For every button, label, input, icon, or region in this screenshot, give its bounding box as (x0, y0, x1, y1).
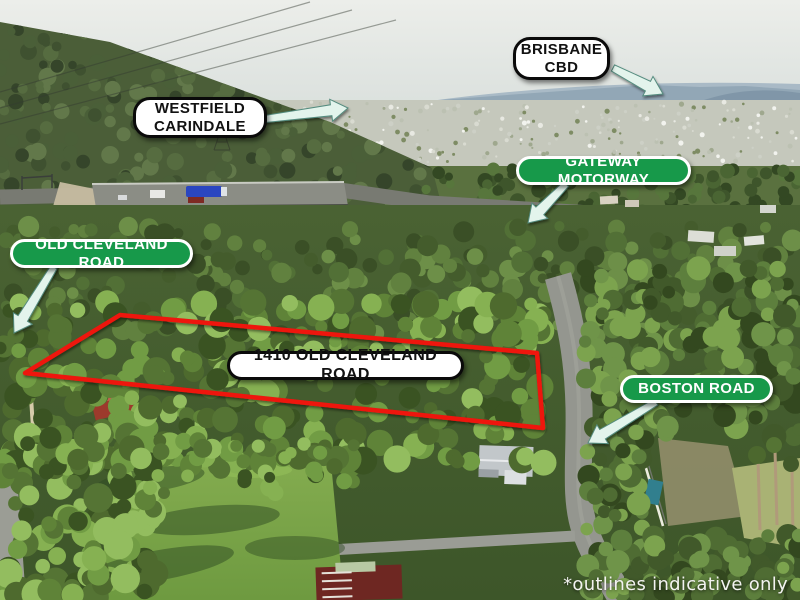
label-boston-road-text: BOSTON ROAD (638, 380, 755, 398)
label-old-cleveland-road-text: OLD CLEVELAND ROAD (13, 236, 190, 271)
aerial-photo-scene (0, 0, 800, 600)
label-old-cleveland-road: OLD CLEVELAND ROAD (10, 239, 193, 268)
label-westfield-carindale: WESTFIELD CARINDALE (133, 97, 267, 138)
label-brisbane-cbd: BRISBANE CBD (513, 37, 610, 80)
label-boston-road: BOSTON ROAD (620, 375, 773, 403)
label-property-address: 1410 OLD CLEVELAND ROAD (227, 351, 464, 380)
disclaimer-text: *outlines indicative only (563, 574, 788, 595)
aerial-photo: BRISBANE CBD WESTFIELD CARINDALE GATEWAY… (0, 0, 800, 600)
label-property-address-text: 1410 OLD CLEVELAND ROAD (230, 347, 461, 385)
label-brisbane-cbd-text: BRISBANE CBD (516, 41, 607, 76)
label-gateway-motorway-text: GATEWAY MOTORWAY (519, 153, 688, 188)
label-westfield-carindale-text: WESTFIELD CARINDALE (136, 100, 264, 135)
label-gateway-motorway: GATEWAY MOTORWAY (516, 156, 691, 185)
